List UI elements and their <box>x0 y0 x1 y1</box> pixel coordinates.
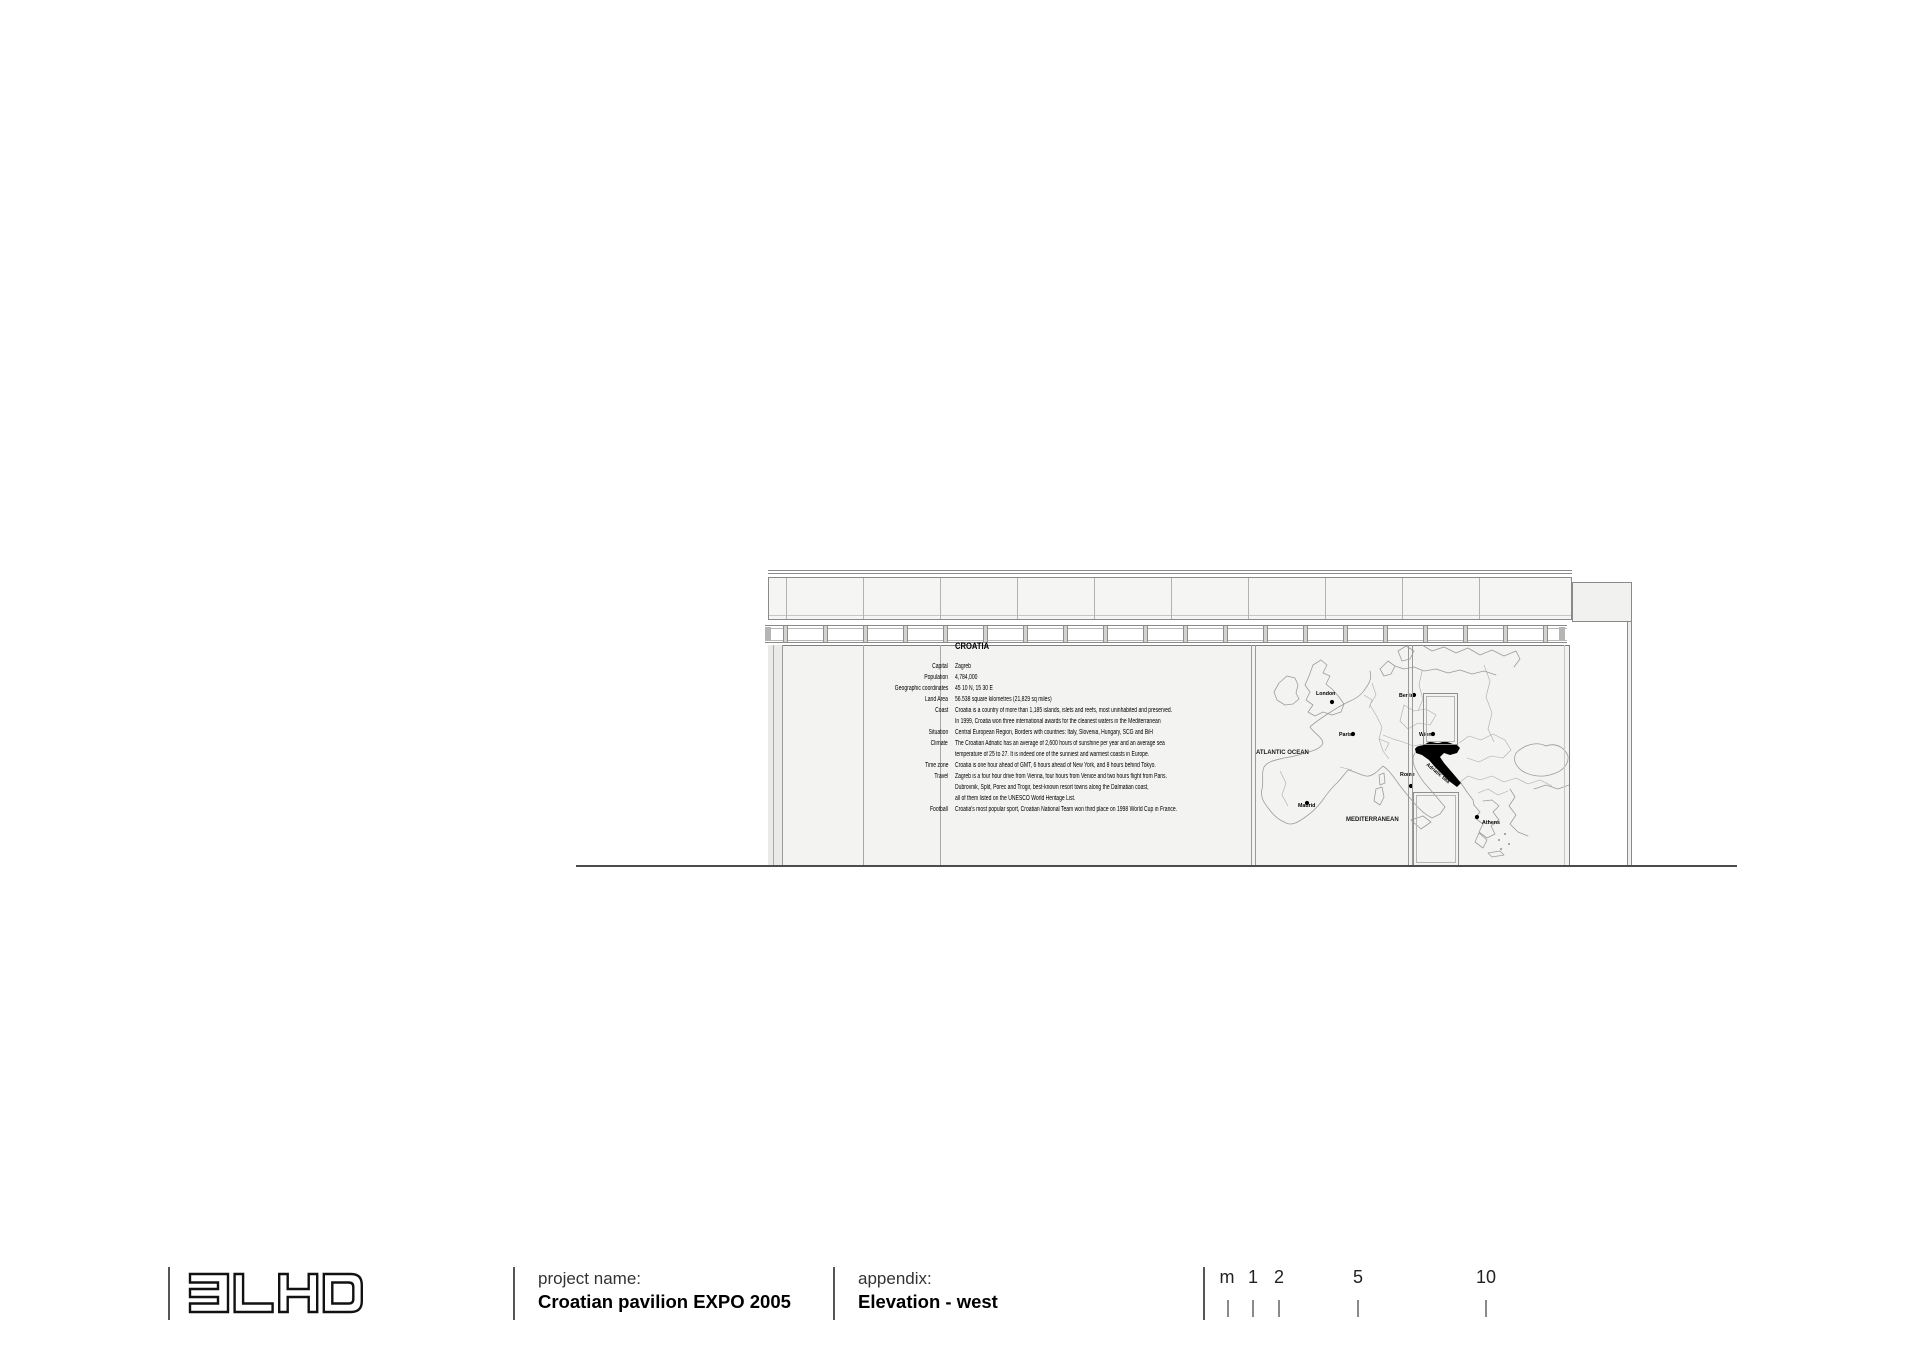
info-text: 4,784,000 <box>955 673 977 683</box>
mediterranean-label: MEDITERRANEAN <box>1346 817 1399 823</box>
info-text: Zagreb <box>955 662 971 672</box>
rail-mullion-tick <box>903 626 908 642</box>
rail-cap-left <box>765 627 771 641</box>
facade-joint <box>773 645 774 866</box>
info-row: Geographic coordinates45 10 N, 15 30 E <box>828 677 1265 688</box>
border-switzerland <box>1379 739 1389 751</box>
coast-sardinia <box>1374 787 1384 805</box>
info-text: 56.538 square kilometres (21,829 sq mile… <box>955 695 1052 705</box>
rail-mullion-tick <box>983 626 988 642</box>
roof-line-inner <box>768 573 1572 574</box>
rail-mullion-tick <box>1543 626 1548 642</box>
canopy-post-right <box>1627 622 1632 866</box>
rail-mullion-tick <box>783 626 788 642</box>
info-text: Central European Region, Borders with co… <box>955 728 1153 738</box>
island-dot <box>1500 848 1501 849</box>
canopy-inner-line <box>769 615 1571 616</box>
coast-greece <box>1474 800 1499 838</box>
island-dot <box>1504 833 1505 834</box>
city-dot-london <box>1330 700 1334 704</box>
coast-crete <box>1488 851 1504 857</box>
roof-line-outer <box>768 570 1572 571</box>
coast-aegean <box>1509 789 1528 836</box>
scale-mark-10: 10 <box>1476 1267 1496 1288</box>
coast-ireland <box>1274 676 1299 705</box>
island-dot <box>1498 839 1499 840</box>
info-text: In 1999, Croatia won three international… <box>955 717 1161 727</box>
border-rhine <box>1370 683 1389 759</box>
rail-mullion-tick <box>1303 626 1308 642</box>
scale-mark-5: 5 <box>1353 1267 1363 1288</box>
titleblock-divider <box>1203 1267 1205 1320</box>
info-row: Land Area56.538 square kilometres (21,82… <box>828 688 1265 699</box>
rail-mullion-tick <box>1423 626 1428 642</box>
rail-mullion-tick <box>823 626 828 642</box>
door-frame-lower-inner <box>1416 795 1456 863</box>
appendix-label: appendix: <box>858 1269 932 1289</box>
info-label: Time zone <box>925 761 948 771</box>
info-label: Geographic coordinates <box>894 684 948 694</box>
window-frame-upper <box>1423 693 1458 745</box>
info-text: all of them listed on the UNESCO World H… <box>955 794 1075 804</box>
canopy-division <box>786 578 787 619</box>
coast-peloponnese <box>1475 833 1487 848</box>
info-label: Capital <box>932 662 948 672</box>
canopy-division <box>1171 578 1172 619</box>
info-panel-title: CROATIA <box>955 641 989 652</box>
info-text: Zagreb is a four hour drive from Vienna,… <box>955 772 1167 782</box>
project-name-label: project name: <box>538 1269 641 1289</box>
coast-balkan-adriatic <box>1461 783 1474 805</box>
door-frame-lower <box>1413 792 1459 866</box>
canopy-division <box>863 578 864 619</box>
info-panel: CapitalZagreb Population4,784,000 Geogra… <box>828 655 1265 809</box>
info-label: Land Area <box>925 695 948 705</box>
company-logo-3lhd <box>188 1272 364 1314</box>
border-balkans <box>1459 776 1552 786</box>
rail-mullion-tick <box>1223 626 1228 642</box>
titleblock-divider <box>513 1267 515 1320</box>
rail-mullion-tick <box>863 626 868 642</box>
city-label-paris: Paris <box>1339 732 1352 738</box>
titleblock-divider <box>168 1267 170 1320</box>
city-label-madrid: Madrid <box>1298 803 1315 809</box>
logo-letter-d <box>324 1274 362 1312</box>
info-label: Climate <box>931 739 948 749</box>
europe-map: ATLANTIC OCEAN MEDITERRANEAN Adriatic Se… <box>1252 643 1570 866</box>
city-label-athens: Athens <box>1482 820 1500 826</box>
facade-joint <box>1564 645 1565 866</box>
coast-baltic <box>1422 645 1520 667</box>
island-dot <box>1508 843 1509 844</box>
info-text: temperature of 25 to 27. It is indeed on… <box>955 750 1149 760</box>
ground-line <box>576 865 1737 867</box>
logo-letter-3 <box>190 1274 228 1312</box>
rail-mullion-tick <box>1103 626 1108 642</box>
info-label: Situation <box>928 728 948 738</box>
canopy-band <box>768 577 1572 620</box>
info-text: Croatia is one hour ahead of GMT, 6 hour… <box>955 761 1156 771</box>
rail-mullion-tick <box>943 626 948 642</box>
facade-rail <box>765 625 1567 643</box>
project-name-value: Croatian pavilion EXPO 2005 <box>538 1291 791 1313</box>
info-label: Travel <box>934 772 948 782</box>
border-carpathia <box>1459 734 1511 762</box>
scale-tick <box>1357 1300 1359 1317</box>
appendix-value: Elevation - west <box>858 1291 998 1313</box>
canopy-division <box>1325 578 1326 619</box>
rail-mullion-tick <box>1463 626 1468 642</box>
scale-tick <box>1278 1300 1280 1317</box>
rail-mullion-tick <box>1263 626 1268 642</box>
rail-mullion-tick <box>1503 626 1508 642</box>
canopy-division <box>1402 578 1403 619</box>
border-portugal <box>1280 771 1288 806</box>
canopy-division <box>1479 578 1480 619</box>
border-greece-north <box>1478 789 1508 795</box>
rail-mullion-tick <box>1023 626 1028 642</box>
drawing-sheet: ATLANTIC OCEAN MEDITERRANEAN Adriatic Se… <box>0 0 1920 1358</box>
facade-rail-inner <box>765 628 1567 641</box>
coast-corsica <box>1379 773 1385 785</box>
info-row: Population4,784,000 <box>828 666 1265 677</box>
facade-left-column <box>768 645 783 866</box>
info-text: Croatia's most popular sport, Croatian N… <box>955 805 1177 815</box>
info-row: CapitalZagreb <box>828 655 1265 666</box>
canopy-division <box>1248 578 1249 619</box>
info-text: The Croatian Adriatic has an average of … <box>955 739 1165 749</box>
logo-letter-l <box>235 1274 273 1312</box>
rail-mullion-tick <box>1383 626 1388 642</box>
info-text: Dubrovnik, Split, Porec and Trogir, best… <box>955 783 1149 793</box>
coast-black-sea <box>1515 744 1568 776</box>
border-pyrenees <box>1340 767 1352 770</box>
info-text: 45 10 N, 15 30 E <box>955 684 993 694</box>
rail-mullion-tick <box>1143 626 1148 642</box>
rail-mullion-tick <box>1063 626 1068 642</box>
logo-letter-h <box>279 1274 317 1312</box>
canopy-division <box>1017 578 1018 619</box>
scale-mark-1: 1 <box>1248 1267 1258 1288</box>
info-text: Croatia is a country of more than 1,185 … <box>955 706 1172 716</box>
titleblock-divider <box>833 1267 835 1320</box>
scale-mark-2: 2 <box>1274 1267 1284 1288</box>
canopy-extension <box>1572 582 1632 622</box>
info-label: Football <box>930 805 948 815</box>
rail-mullion-tick <box>1343 626 1348 642</box>
scale-tick <box>1227 1300 1229 1317</box>
canopy-division <box>940 578 941 619</box>
city-dot-athens <box>1475 815 1479 819</box>
window-frame-upper-inner <box>1426 696 1455 742</box>
coast-north <box>1395 666 1496 675</box>
rail-mullion-tick <box>1183 626 1188 642</box>
info-label: Population <box>924 673 948 683</box>
scale-unit: m <box>1220 1267 1235 1288</box>
facade-joint <box>1408 645 1409 866</box>
city-label-london: London <box>1316 691 1335 697</box>
rail-cap-right <box>1559 627 1565 641</box>
canopy-division <box>1094 578 1095 619</box>
border-poland-ukraine <box>1484 665 1494 742</box>
info-label: Coast <box>935 706 948 716</box>
scale-tick <box>1485 1300 1487 1317</box>
scale-tick <box>1252 1300 1254 1317</box>
coast-denmark <box>1380 661 1395 676</box>
